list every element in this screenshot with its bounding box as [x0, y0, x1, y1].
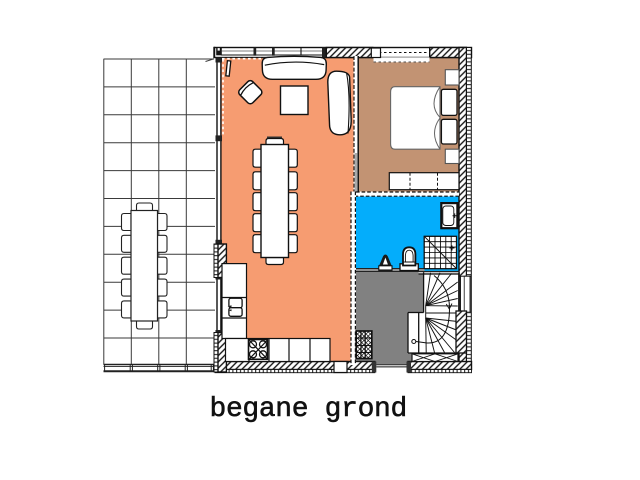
svg-text:begane grond: begane grond — [210, 394, 407, 425]
